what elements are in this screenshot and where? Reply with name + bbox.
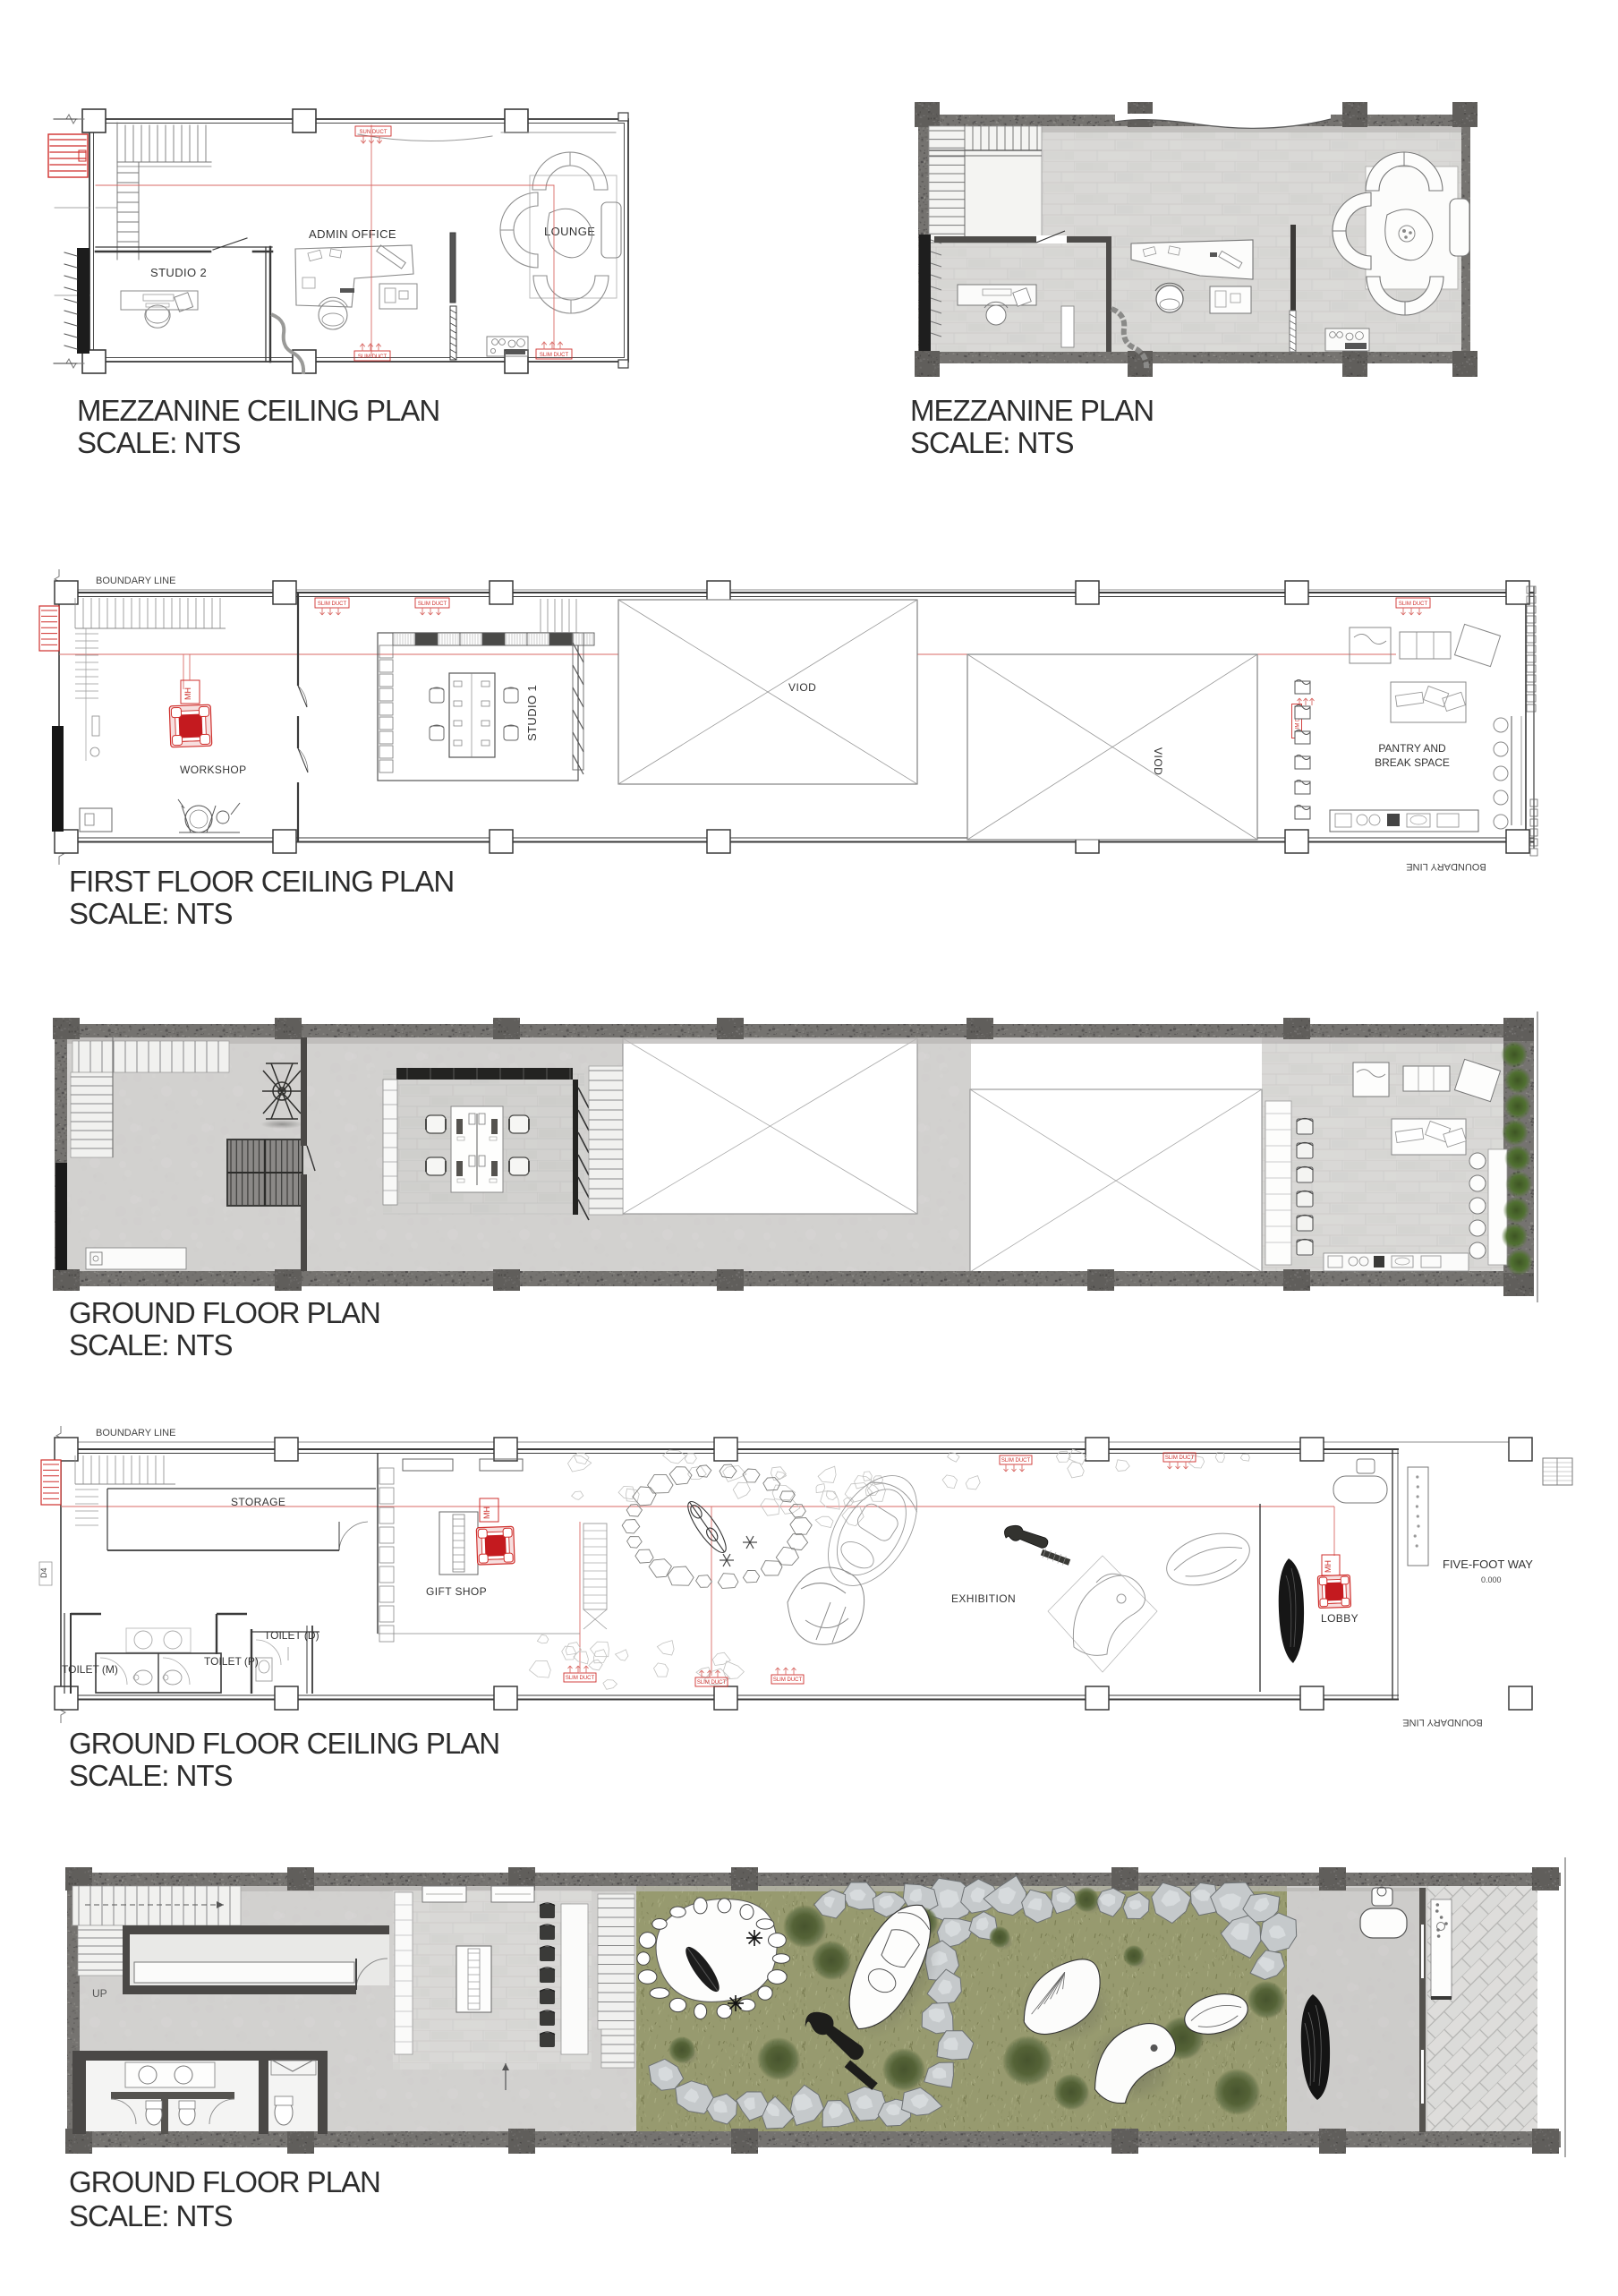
svg-text:LOBBY: LOBBY: [1321, 1612, 1358, 1625]
svg-text:SLIM DUCT: SLIM DUCT: [358, 354, 387, 360]
svg-text:MEZZANINE PLAN: MEZZANINE PLAN: [910, 394, 1154, 427]
svg-text:GROUND FLOOR PLAN: GROUND FLOOR PLAN: [69, 1296, 380, 1329]
svg-text:SCALE: NTS: SCALE: NTS: [77, 426, 241, 459]
svg-text:ADMIN OFFICE: ADMIN OFFICE: [309, 227, 396, 241]
svg-text:GROUND FLOOR CEILING PLAN: GROUND FLOOR CEILING PLAN: [69, 1727, 499, 1760]
svg-text:PANTRY AND: PANTRY AND: [1378, 742, 1446, 755]
svg-text:SCALE: NTS: SCALE: NTS: [69, 897, 233, 930]
svg-text:BOUNDARY LINE: BOUNDARY LINE: [96, 1428, 175, 1438]
svg-text:SLIM DUCT: SLIM DUCT: [418, 602, 447, 607]
svg-text:GIFT SHOP: GIFT SHOP: [426, 1585, 487, 1598]
svg-text:SLIM DUCT: SLIM DUCT: [1165, 1455, 1195, 1461]
svg-text:WORKSHOP: WORKSHOP: [180, 764, 247, 776]
svg-text:STORAGE: STORAGE: [231, 1496, 285, 1508]
svg-text:BOUNDARY LINE: BOUNDARY LINE: [96, 576, 175, 586]
svg-text:0.000: 0.000: [1481, 1575, 1502, 1584]
svg-text:BOUNDARY LINE: BOUNDARY LINE: [1402, 1717, 1482, 1728]
svg-text:SCALE: NTS: SCALE: NTS: [69, 1759, 233, 1792]
svg-text:SLIM DUCT: SLIM DUCT: [697, 1680, 727, 1686]
svg-text:BOUNDARY LINE: BOUNDARY LINE: [1406, 861, 1486, 872]
svg-text:MH: MH: [482, 1506, 491, 1519]
svg-text:TOILET (D): TOILET (D): [264, 1629, 319, 1642]
svg-text:EXHIBITION: EXHIBITION: [951, 1592, 1016, 1605]
svg-text:SLIM DUCT: SLIM DUCT: [318, 602, 347, 607]
svg-text:SCALE: NTS: SCALE: NTS: [69, 2199, 233, 2232]
svg-text:TOILET (M): TOILET (M): [62, 1663, 118, 1676]
svg-text:LOUNGE: LOUNGE: [544, 225, 595, 238]
svg-text:MH: MH: [183, 687, 192, 700]
svg-text:FIRST FLOOR CEILING PLAN: FIRST FLOOR CEILING PLAN: [69, 865, 454, 898]
svg-text:MEZZANINE CEILING PLAN: MEZZANINE CEILING PLAN: [77, 394, 439, 427]
svg-text:FIVE-FOOT WAY: FIVE-FOOT WAY: [1443, 1558, 1533, 1571]
svg-text:D4: D4: [39, 1567, 48, 1578]
svg-text:GROUND FLOOR PLAN: GROUND FLOOR PLAN: [69, 2165, 380, 2198]
svg-text:SUN DUCT: SUN DUCT: [360, 130, 387, 135]
svg-text:TOILET (P): TOILET (P): [204, 1655, 259, 1668]
svg-text:SCALE: NTS: SCALE: NTS: [910, 426, 1074, 459]
svg-text:SCALE: NTS: SCALE: NTS: [69, 1328, 233, 1361]
svg-text:SLIM DUCT: SLIM DUCT: [1399, 602, 1428, 607]
svg-text:BREAK SPACE: BREAK SPACE: [1375, 756, 1450, 769]
svg-text:SLIM DUCT: SLIM DUCT: [566, 1676, 595, 1681]
svg-text:STUDIO 2: STUDIO 2: [150, 266, 207, 279]
svg-text:VIOD: VIOD: [1152, 747, 1164, 775]
svg-text:SLIM DUCT: SLIM DUCT: [1001, 1458, 1031, 1464]
svg-text:UP: UP: [92, 1987, 107, 2000]
svg-text:SLIM DUCT: SLIM DUCT: [773, 1677, 803, 1683]
svg-text:SLIM DUCT: SLIM DUCT: [540, 353, 569, 358]
svg-text:MH: MH: [1324, 1560, 1333, 1573]
svg-text:VIOD: VIOD: [788, 681, 816, 694]
svg-text:STUDIO 1: STUDIO 1: [525, 685, 539, 741]
